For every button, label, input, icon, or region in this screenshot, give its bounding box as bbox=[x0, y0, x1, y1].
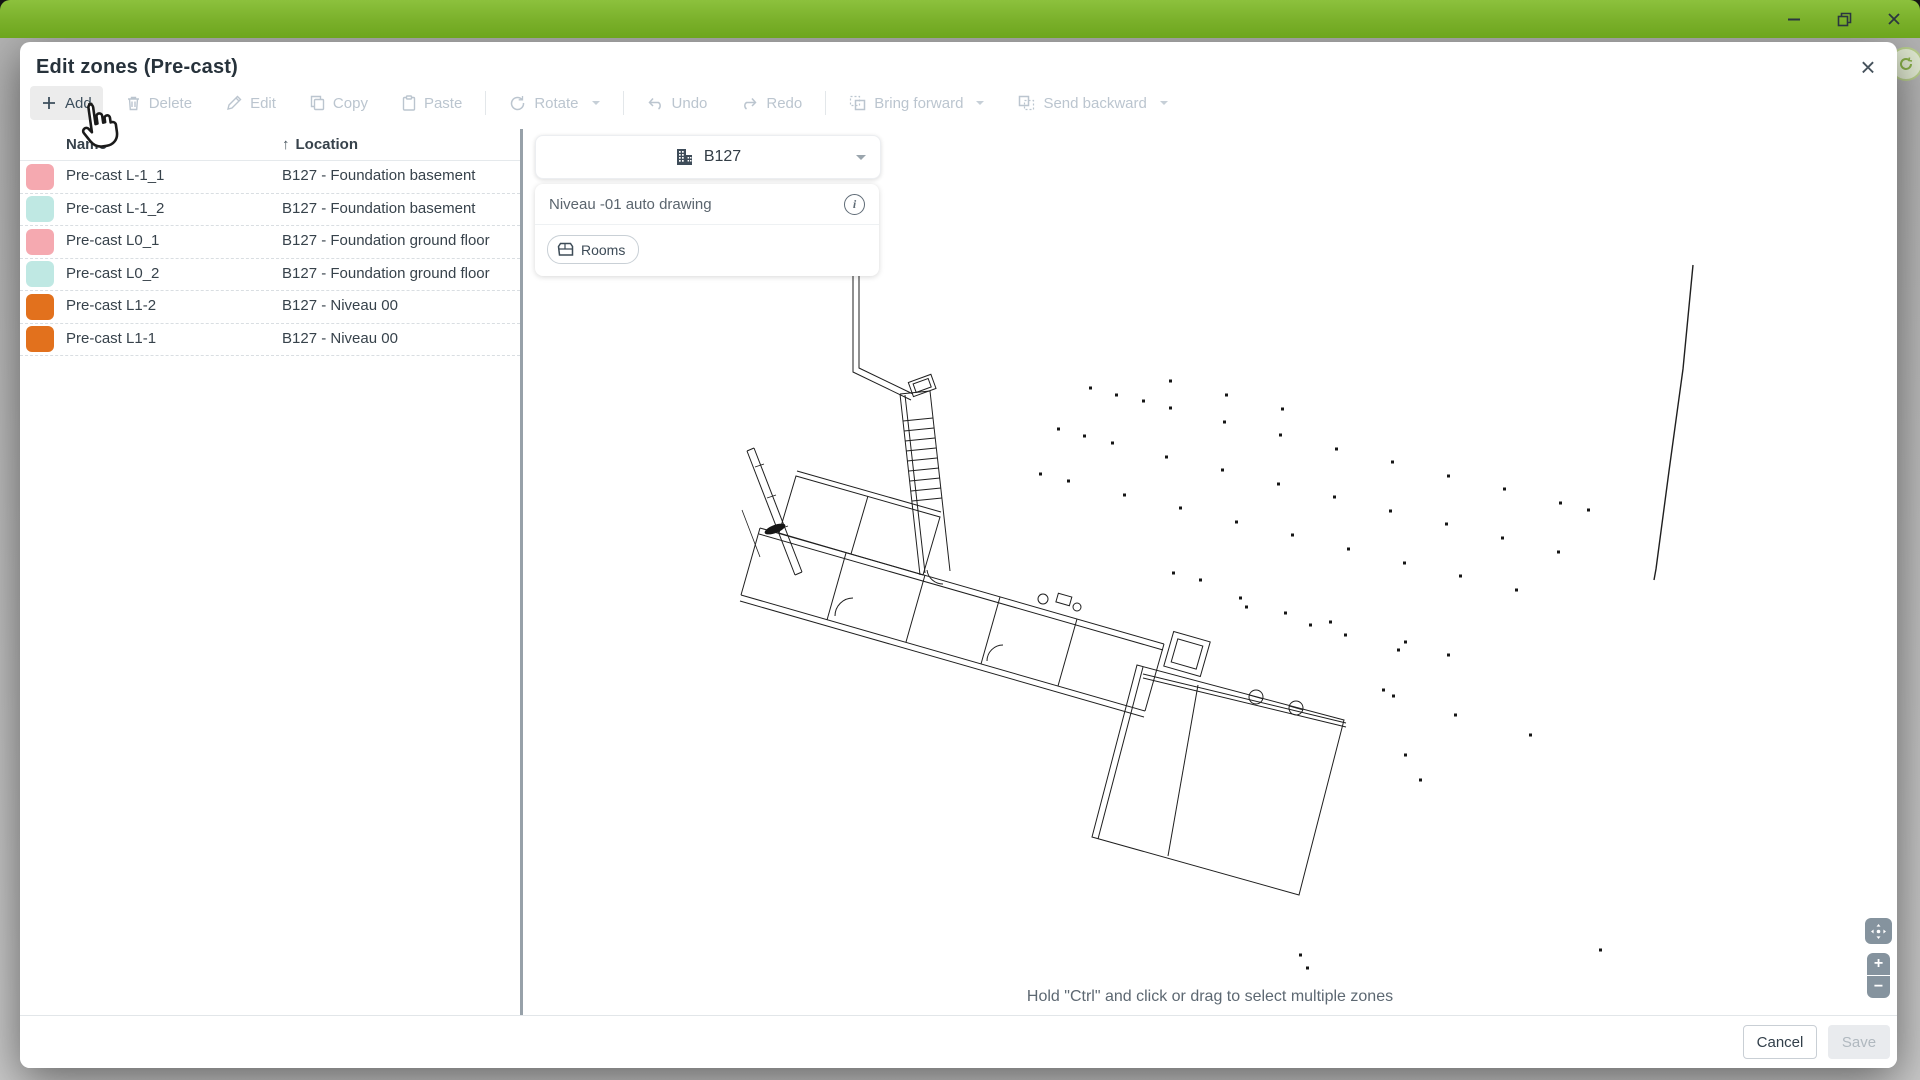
copy-label: Copy bbox=[333, 95, 368, 112]
drawing-card: Niveau -01 auto drawing i Rooms bbox=[535, 184, 879, 276]
close-icon bbox=[1887, 12, 1901, 26]
building-icon bbox=[675, 148, 694, 166]
table-row[interactable]: Pre-cast L0_2 B127 - Foundation ground f… bbox=[20, 259, 520, 292]
restore-button[interactable] bbox=[1834, 9, 1854, 29]
bring-forward-label: Bring forward bbox=[874, 95, 963, 112]
restore-icon bbox=[1837, 12, 1852, 27]
edit-button[interactable]: Edit bbox=[215, 86, 287, 120]
edit-label: Edit bbox=[250, 95, 276, 112]
bring-forward-icon bbox=[849, 95, 866, 111]
chevron-down-icon bbox=[592, 101, 600, 109]
zone-location: B127 - Foundation basement bbox=[282, 167, 475, 184]
redo-icon bbox=[741, 96, 758, 110]
add-label: Add bbox=[65, 95, 92, 112]
zone-name: Pre-cast L0_2 bbox=[66, 265, 159, 282]
zone-color-swatch bbox=[26, 261, 54, 287]
rotate-icon bbox=[509, 95, 526, 111]
zone-name: Pre-cast L1-2 bbox=[66, 297, 156, 314]
zone-location: B127 - Foundation basement bbox=[282, 200, 475, 217]
table-row[interactable]: Pre-cast L1-2 B127 - Niveau 00 bbox=[20, 291, 520, 324]
sort-ascending-icon: ↑ bbox=[282, 136, 290, 153]
dialog-close-button[interactable]: × bbox=[1853, 52, 1883, 82]
zone-name: Pre-cast L0_1 bbox=[66, 232, 159, 249]
dialog-title: Edit zones (Pre-cast) bbox=[36, 56, 238, 79]
drawing-title: Niveau -01 auto drawing bbox=[549, 196, 712, 213]
zoom-controls: + − bbox=[1867, 953, 1890, 998]
building-selector[interactable]: B127 bbox=[535, 135, 881, 179]
zoom-in-button[interactable]: + bbox=[1867, 953, 1890, 975]
undo-icon bbox=[647, 96, 664, 110]
location-header-label: Location bbox=[296, 136, 359, 153]
fit-view-button[interactable] bbox=[1865, 918, 1892, 944]
zone-location: B127 - Foundation ground floor bbox=[282, 232, 490, 249]
zone-location: B127 - Niveau 00 bbox=[282, 297, 398, 314]
minimize-button[interactable] bbox=[1784, 9, 1804, 29]
edit-zones-dialog: Edit zones (Pre-cast) × Add Delete Edit … bbox=[20, 42, 1897, 1068]
plus-icon bbox=[41, 95, 57, 111]
send-backward-button[interactable]: Send backward bbox=[1007, 86, 1178, 120]
info-icon[interactable]: i bbox=[844, 194, 865, 215]
zones-table: Pre-cast L-1_1 B127 - Foundation basemen… bbox=[20, 161, 520, 356]
table-row[interactable]: Pre-cast L0_1 B127 - Foundation ground f… bbox=[20, 226, 520, 259]
dialog-footer: Cancel Save bbox=[20, 1015, 1897, 1068]
paste-button[interactable]: Paste bbox=[391, 86, 473, 120]
chevron-down-icon bbox=[1160, 101, 1168, 109]
window-controls bbox=[1784, 0, 1904, 38]
clipboard-icon bbox=[402, 95, 416, 111]
chevron-down-icon bbox=[856, 155, 866, 165]
zone-name: Pre-cast L1-1 bbox=[66, 330, 156, 347]
rooms-chip-label: Rooms bbox=[581, 242, 625, 258]
zones-toolbar: Add Delete Edit Copy Paste Rotate Undo bbox=[30, 86, 1179, 120]
send-backward-icon bbox=[1018, 95, 1035, 111]
toolbar-separator bbox=[485, 91, 486, 115]
bring-forward-button[interactable]: Bring forward bbox=[838, 86, 995, 120]
zone-color-swatch bbox=[26, 229, 54, 255]
window-titlebar bbox=[0, 0, 1920, 38]
cancel-button[interactable]: Cancel bbox=[1743, 1025, 1817, 1059]
zone-name: Pre-cast L-1_2 bbox=[66, 200, 164, 217]
undo-button[interactable]: Undo bbox=[636, 86, 719, 120]
send-backward-label: Send backward bbox=[1043, 95, 1146, 112]
redo-button[interactable]: Redo bbox=[730, 86, 813, 120]
column-header-name[interactable]: Name bbox=[66, 136, 107, 153]
zone-color-swatch bbox=[26, 294, 54, 320]
rotate-button[interactable]: Rotate bbox=[498, 86, 610, 120]
chevron-down-icon bbox=[976, 101, 984, 109]
undo-label: Undo bbox=[672, 95, 708, 112]
floor-plan-canvas[interactable]: B127 Niveau -01 auto drawing i Rooms Hol… bbox=[523, 129, 1897, 1016]
pan-icon bbox=[1870, 923, 1887, 940]
drawing-card-header: Niveau -01 auto drawing i bbox=[535, 184, 879, 225]
table-row[interactable]: Pre-cast L-1_2 B127 - Foundation basemen… bbox=[20, 194, 520, 227]
multi-select-hint: Hold "Ctrl" and click or drag to select … bbox=[523, 988, 1897, 1006]
delete-label: Delete bbox=[149, 95, 192, 112]
trash-icon bbox=[126, 95, 141, 111]
zone-color-swatch bbox=[26, 196, 54, 222]
table-row[interactable]: Pre-cast L1-1 B127 - Niveau 00 bbox=[20, 324, 520, 357]
rooms-icon bbox=[557, 242, 574, 257]
add-button[interactable]: Add bbox=[30, 86, 103, 120]
redo-label: Redo bbox=[766, 95, 802, 112]
save-button: Save bbox=[1828, 1025, 1890, 1059]
table-row[interactable]: Pre-cast L-1_1 B127 - Foundation basemen… bbox=[20, 161, 520, 194]
zone-location: B127 - Niveau 00 bbox=[282, 330, 398, 347]
zone-color-swatch bbox=[26, 326, 54, 352]
zone-location: B127 - Foundation ground floor bbox=[282, 265, 490, 282]
toolbar-separator bbox=[623, 91, 624, 115]
delete-button[interactable]: Delete bbox=[115, 86, 203, 120]
paste-label: Paste bbox=[424, 95, 462, 112]
building-selector-value: B127 bbox=[704, 148, 741, 166]
rotate-label: Rotate bbox=[534, 95, 578, 112]
column-header-location[interactable]: ↑ Location bbox=[282, 136, 358, 153]
zones-table-header: Name ↑ Location bbox=[20, 130, 520, 161]
zoom-out-button[interactable]: − bbox=[1867, 976, 1890, 998]
minimize-icon bbox=[1787, 12, 1801, 26]
window-close-button[interactable] bbox=[1884, 9, 1904, 29]
toolbar-separator bbox=[825, 91, 826, 115]
zone-color-swatch bbox=[26, 164, 54, 190]
copy-icon bbox=[310, 95, 325, 111]
pencil-icon bbox=[226, 95, 242, 111]
rooms-chip[interactable]: Rooms bbox=[547, 235, 639, 264]
zone-name: Pre-cast L-1_1 bbox=[66, 167, 164, 184]
copy-button[interactable]: Copy bbox=[299, 86, 379, 120]
